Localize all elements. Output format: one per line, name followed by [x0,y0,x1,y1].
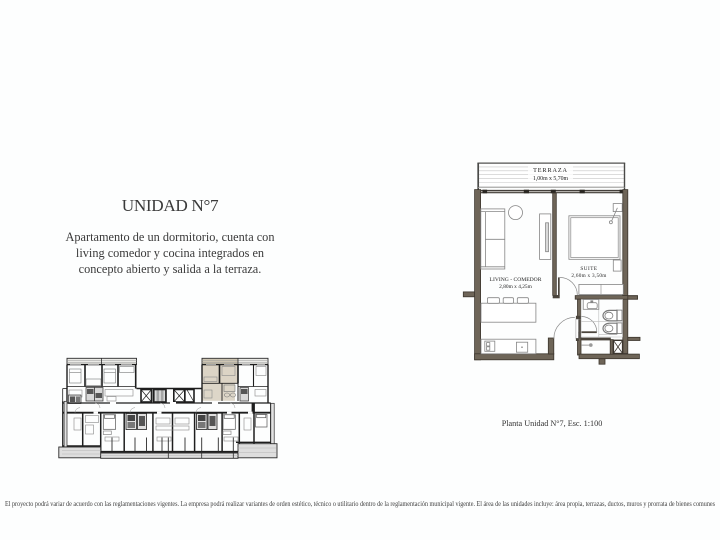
svg-text:1,00m x 5,70m: 1,00m x 5,70m [533,176,569,182]
svg-text:Apartamento de un dormitorio,: Apartamento de un dormitorio, cuenta con [66,230,275,244]
svg-text:TERRAZA: TERRAZA [533,167,568,174]
svg-text:Planta Unidad N°7, Esc. 1:100: Planta Unidad N°7, Esc. 1:100 [502,419,603,428]
svg-text:concepto abierto y salida a la: concepto abierto y salida a la terraza. [79,262,262,276]
svg-text:El proyecto podrá variar de ac: El proyecto podrá variar de acuerdo con … [5,499,715,508]
svg-text:UNIDAD N°7: UNIDAD N°7 [122,196,219,215]
svg-text:LIVING - COMEDOR: LIVING - COMEDOR [490,277,542,283]
svg-text:2,60m x 3,50m: 2,60m x 3,50m [571,273,606,279]
svg-text:SUITE: SUITE [580,266,597,272]
svg-text:living comedor y cocina integr: living comedor y cocina integrados en [76,246,264,260]
svg-text:2,80m x 4,25m: 2,80m x 4,25m [499,284,532,290]
